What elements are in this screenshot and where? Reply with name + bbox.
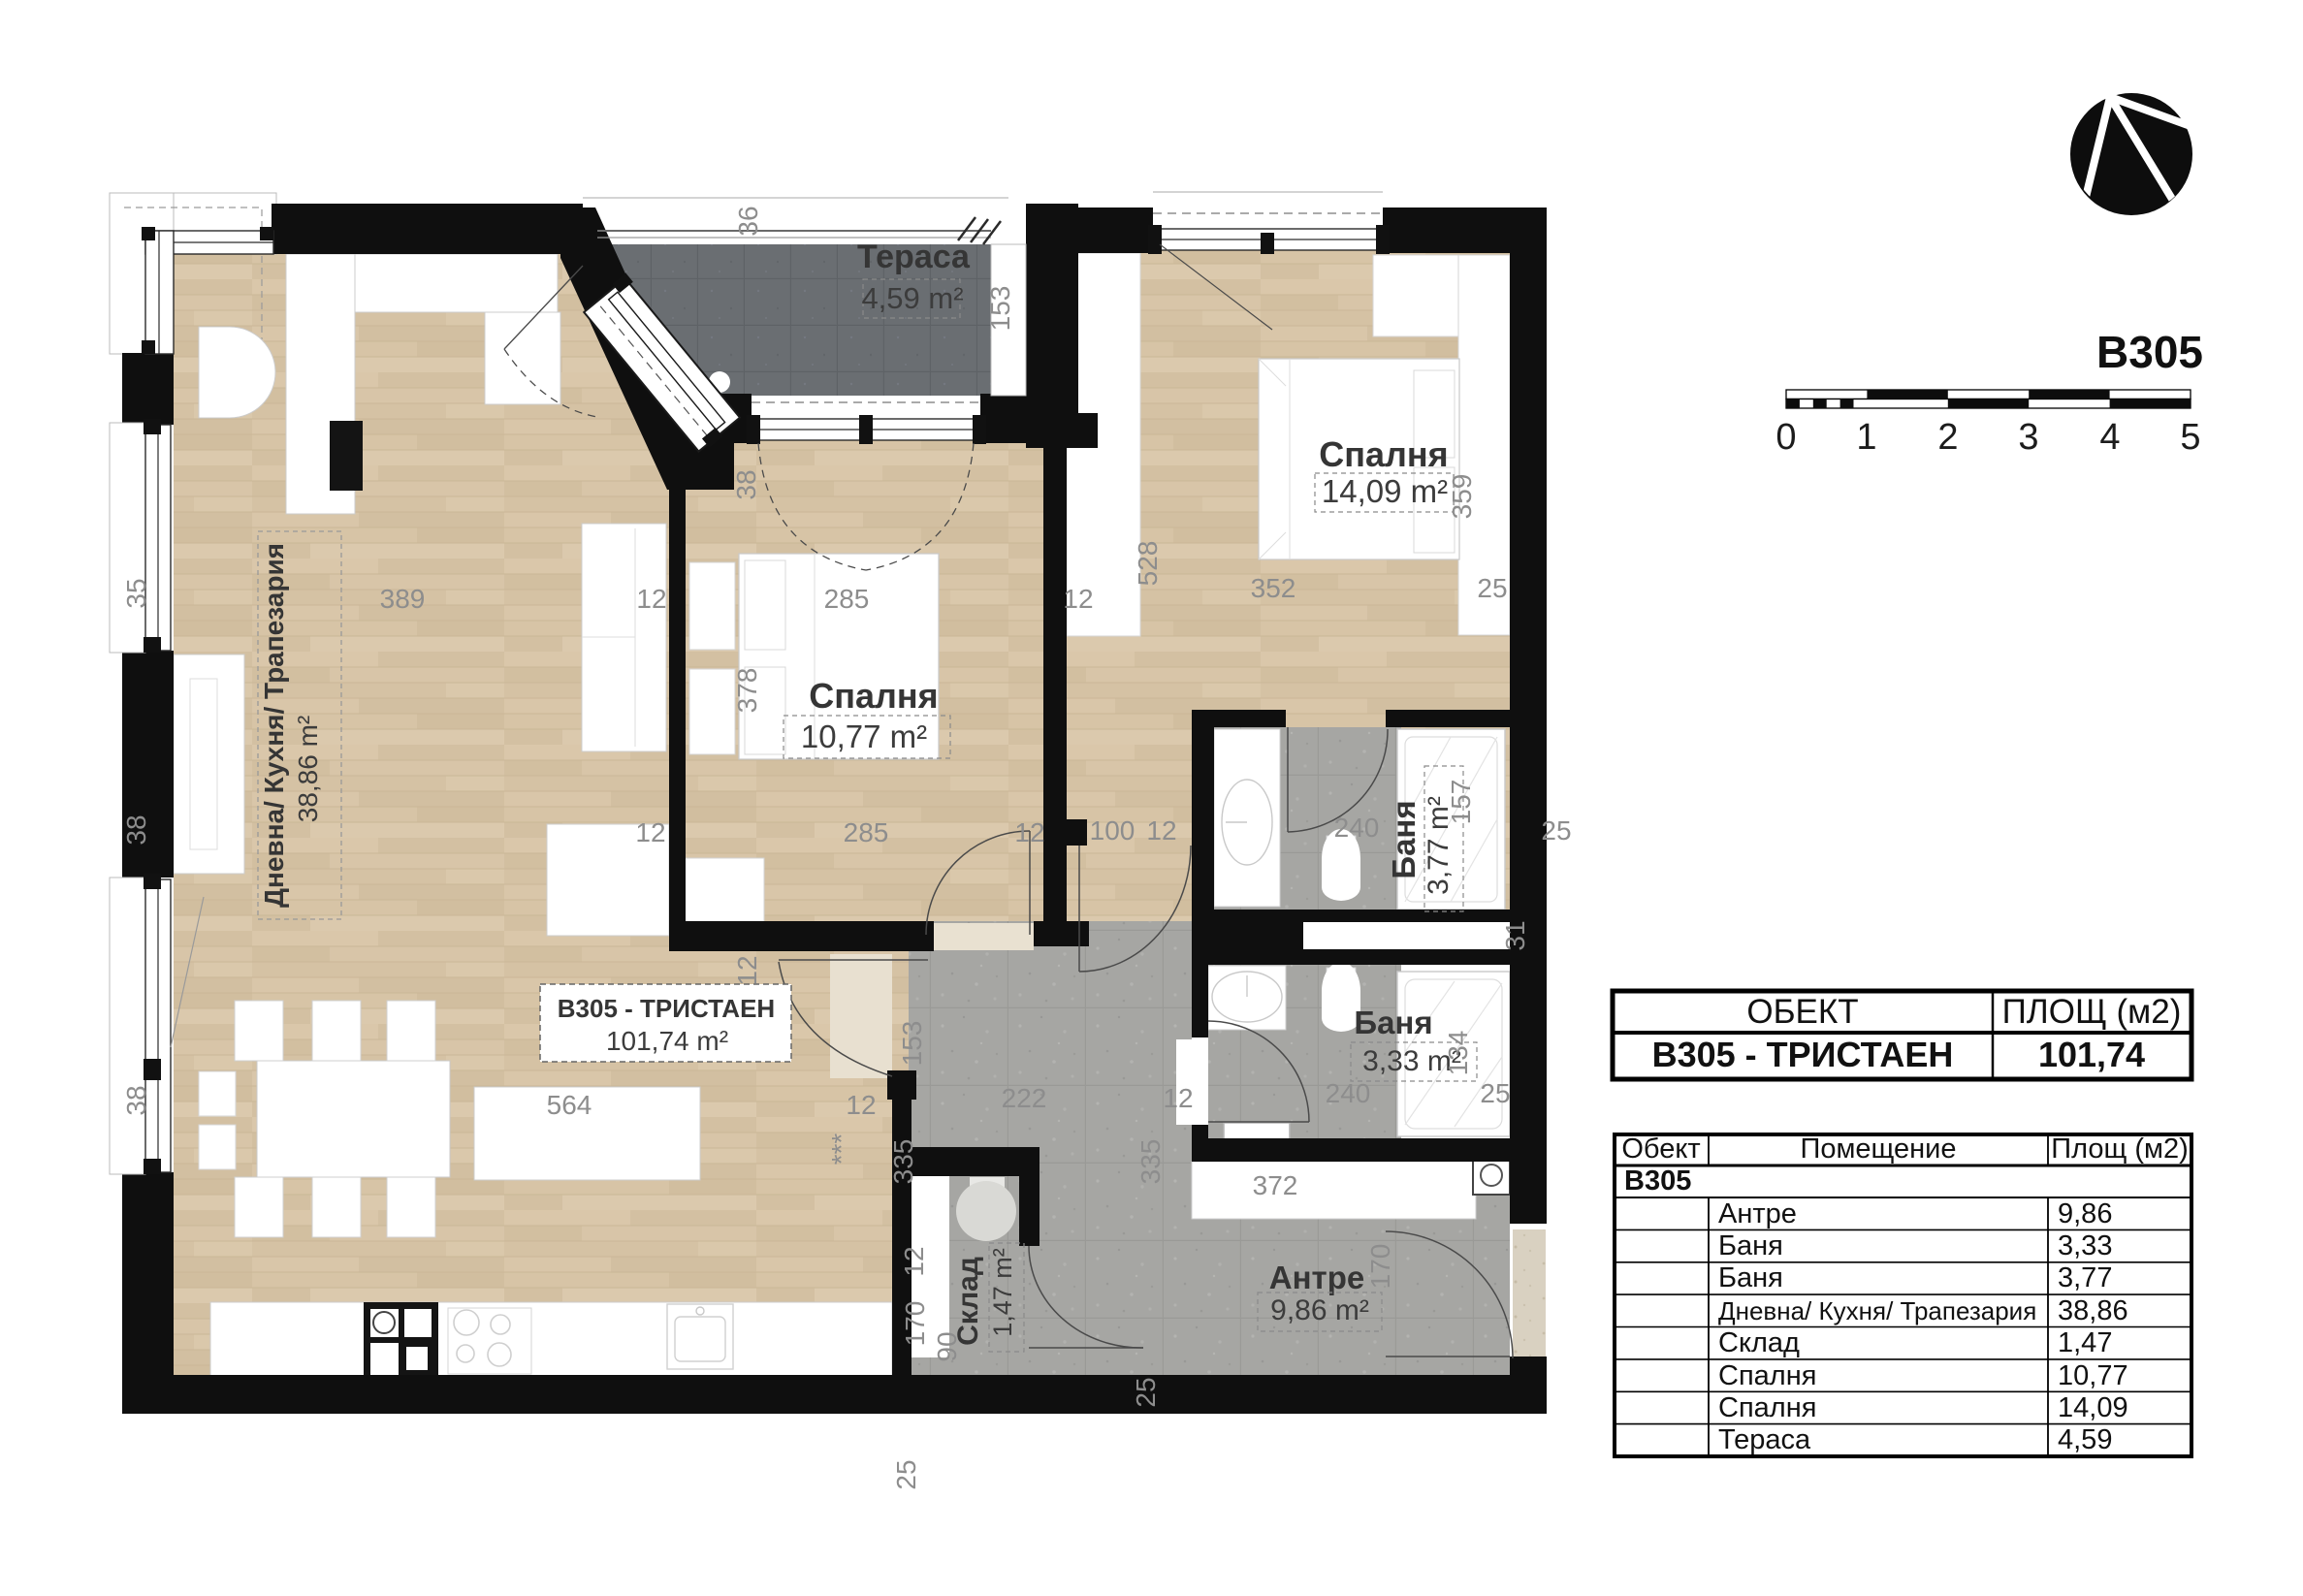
svg-text:12: 12	[1163, 1083, 1193, 1113]
svg-text:Спалня: Спалня	[1718, 1392, 1816, 1423]
svg-text:Антре: Антре	[1269, 1260, 1364, 1295]
svg-text:B305 - ТРИСТАЕН: B305 - ТРИСТАЕН	[558, 994, 775, 1023]
svg-text:2: 2	[1937, 417, 1958, 458]
svg-text:Площ (м2): Площ (м2)	[2051, 1133, 2189, 1165]
svg-text:Баня: Баня	[1718, 1230, 1783, 1261]
svg-text:101,74: 101,74	[2038, 1035, 2145, 1074]
svg-text:12: 12	[635, 817, 665, 847]
svg-text:35: 35	[121, 578, 151, 608]
svg-text:Дневна/ Кухня/ Трапезария: Дневна/ Кухня/ Трапезария	[259, 543, 289, 908]
svg-text:12: 12	[899, 1246, 929, 1276]
svg-text:153: 153	[897, 1021, 927, 1067]
svg-text:0: 0	[1775, 417, 1796, 458]
svg-text:12: 12	[1014, 817, 1044, 847]
svg-text:Баня: Баня	[1386, 800, 1422, 878]
svg-text:100: 100	[1090, 815, 1136, 846]
svg-text:285: 285	[824, 584, 870, 614]
svg-text:Дневна/ Кухня/ Трапезария: Дневна/ Кухня/ Трапезария	[1718, 1296, 2036, 1325]
svg-text:38,86: 38,86	[2058, 1295, 2128, 1326]
svg-text:4,59: 4,59	[2058, 1424, 2112, 1455]
svg-text:564: 564	[547, 1090, 592, 1120]
svg-text:Обект: Обект	[1621, 1133, 1700, 1165]
svg-text:528: 528	[1133, 541, 1163, 587]
svg-text:Склад: Склад	[1718, 1327, 1800, 1358]
svg-text:3,33: 3,33	[2058, 1230, 2112, 1261]
svg-text:285: 285	[844, 817, 889, 847]
svg-text:Тераса: Тераса	[1718, 1424, 1811, 1455]
svg-text:378: 378	[732, 668, 762, 714]
svg-text:Спалня: Спалня	[1319, 434, 1448, 474]
svg-text:9,86: 9,86	[2058, 1198, 2112, 1229]
svg-text:B305 - ТРИСТАЕН: B305 - ТРИСТАЕН	[1652, 1035, 1954, 1074]
svg-text:101,74 m²: 101,74 m²	[606, 1026, 728, 1056]
svg-text:153: 153	[985, 286, 1015, 332]
svg-text:359: 359	[1447, 474, 1477, 520]
svg-text:25: 25	[1480, 1078, 1510, 1108]
svg-text:14,09: 14,09	[2058, 1392, 2128, 1423]
svg-text:38,86 m²: 38,86 m²	[293, 716, 323, 823]
svg-text:4,59 m²: 4,59 m²	[861, 281, 963, 315]
svg-text:1,47: 1,47	[2058, 1327, 2112, 1358]
svg-text:25: 25	[1477, 573, 1507, 603]
svg-text:170: 170	[900, 1301, 930, 1347]
svg-text:25: 25	[891, 1459, 921, 1489]
svg-text:Спалня: Спалня	[809, 676, 938, 716]
svg-text:389: 389	[380, 584, 426, 614]
svg-text:4: 4	[2099, 417, 2120, 458]
svg-text:38: 38	[121, 1085, 151, 1115]
svg-text:3,77: 3,77	[2058, 1262, 2112, 1293]
svg-text:1: 1	[1856, 417, 1876, 458]
svg-text:Антре: Антре	[1718, 1198, 1797, 1229]
svg-text:36: 36	[733, 206, 763, 236]
svg-text:Баня: Баня	[1718, 1262, 1783, 1293]
svg-text:222: 222	[1002, 1083, 1047, 1113]
svg-text:134: 134	[1443, 1031, 1473, 1076]
svg-text:ОБЕКТ: ОБЕКТ	[1746, 993, 1858, 1031]
svg-text:ПЛОЩ (м2): ПЛОЩ (м2)	[2002, 993, 2182, 1031]
svg-text:157: 157	[1446, 780, 1476, 825]
svg-text:10,77 m²: 10,77 m²	[801, 718, 927, 754]
svg-text:3: 3	[2018, 417, 2038, 458]
svg-text:B305: B305	[1624, 1165, 1691, 1197]
svg-text:10,77: 10,77	[2058, 1360, 2128, 1391]
svg-text:B305: B305	[2096, 327, 2203, 377]
svg-text:38: 38	[121, 814, 151, 845]
svg-text:12: 12	[846, 1090, 876, 1120]
svg-text:9,86 m²: 9,86 m²	[1270, 1294, 1369, 1326]
svg-text:25: 25	[1131, 1377, 1161, 1407]
svg-text:Тераса: Тераса	[857, 239, 971, 275]
svg-text:***: ***	[826, 1133, 856, 1165]
svg-text:Спалня: Спалня	[1718, 1360, 1816, 1391]
svg-text:12: 12	[636, 584, 666, 614]
svg-text:12: 12	[732, 955, 762, 985]
svg-text:240: 240	[1334, 813, 1380, 843]
svg-text:25: 25	[1541, 815, 1571, 846]
svg-text:14,09 m²: 14,09 m²	[1322, 473, 1448, 509]
svg-text:372: 372	[1253, 1170, 1298, 1200]
svg-text:38: 38	[731, 469, 761, 499]
svg-text:352: 352	[1251, 573, 1296, 603]
svg-text:1,47 m²: 1,47 m²	[988, 1248, 1017, 1337]
svg-text:5: 5	[2180, 417, 2200, 458]
svg-text:31: 31	[1500, 920, 1530, 950]
svg-text:Помещение: Помещение	[1800, 1133, 1956, 1165]
svg-text:170: 170	[1365, 1244, 1395, 1290]
svg-text:12: 12	[1146, 815, 1176, 846]
svg-text:335: 335	[1136, 1139, 1166, 1185]
svg-text:335: 335	[888, 1139, 918, 1185]
svg-text:90: 90	[932, 1331, 962, 1361]
svg-text:240: 240	[1326, 1078, 1371, 1108]
svg-text:Баня: Баня	[1354, 1005, 1432, 1040]
svg-text:12: 12	[1063, 584, 1093, 614]
